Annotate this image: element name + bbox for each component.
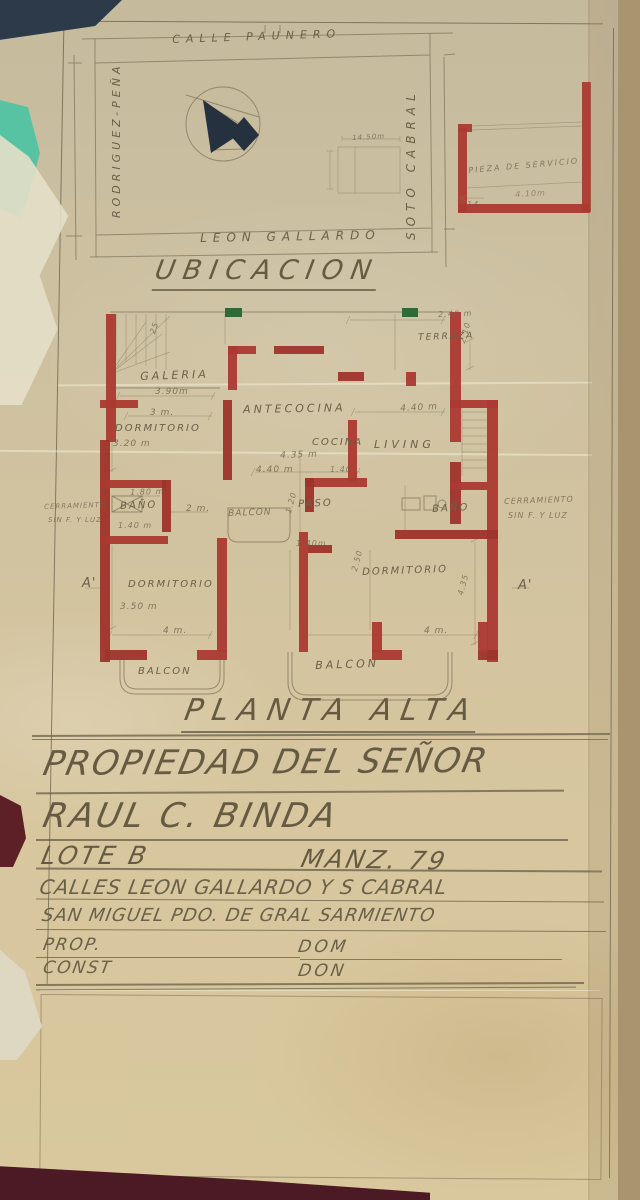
calles-label: CALLES LEON GALLARDO Y S CABRAL: [38, 875, 450, 899]
empty-panel: [39, 994, 602, 1180]
cerramiento-right-2: SIN F. Y LUZ: [508, 511, 568, 520]
localidad-label: SAN MIGUEL PDO. DE GRAL SARMIENTO: [40, 905, 437, 926]
dim-dorm1-d: 3 m.: [150, 408, 174, 418]
ubicacion-title: UBICACION: [152, 255, 382, 291]
room-living: LIVING: [374, 438, 435, 451]
photo-edge-right-fold: [590, 0, 618, 1200]
const-label: CONST: [41, 958, 114, 978]
door-marker: [225, 308, 242, 317]
dim-dorm1-w: 3.20 m: [113, 439, 151, 449]
tb-line: [300, 959, 562, 960]
cerramiento-left-2: SIN F. Y LUZ: [48, 516, 102, 524]
stairs-topleft: [110, 314, 170, 374]
dim-dorm2-b: 4 m.: [163, 626, 187, 636]
dim-cocina-d: 1.40: [330, 465, 352, 474]
room-bano-1: BAÑO: [120, 500, 157, 512]
service-room-corner-dim: 14: [467, 200, 479, 209]
dim-dorm3-l: 1.40m: [296, 539, 327, 548]
dim-cocina-w2: 4.40 m: [256, 465, 294, 475]
lot-dimension: 14.50m: [352, 132, 385, 142]
room-dormitorio-1: DORMITORIO: [115, 423, 201, 434]
dim-bano1-r: 2 m.: [186, 504, 210, 514]
owner-label: PROPIEDAD DEL SEÑOR: [40, 741, 493, 784]
room-balcon-1: BALCON: [138, 666, 192, 677]
stairs-right: [462, 408, 487, 476]
dim-cocina-w: 4.35 m: [280, 450, 318, 461]
dom-value-2: DON: [296, 961, 348, 981]
street-soto-cabral: SOTO CABRAL: [404, 88, 418, 240]
plan-title: PLANTA ALTA: [181, 693, 482, 733]
room-paso: PASO: [298, 498, 333, 510]
compass-icon: [186, 87, 260, 161]
street-rodriguez-pena: RODRIGUEZ-PEÑA: [110, 63, 123, 218]
dim-dorm3-b: 4 m.: [424, 626, 448, 636]
prop-label: PROP.: [41, 935, 103, 955]
dim-bano1-w: 1.80 m: [130, 487, 164, 497]
room-dormitorio-2: DORMITORIO: [128, 579, 214, 590]
room-balcon-2: BALCON: [315, 657, 379, 672]
owner-name: RAUL C. BINDA: [39, 796, 342, 836]
blueprint-photo: { "ubicacion": { "title": "UBICACION", "…: [0, 0, 640, 1200]
dim-terraza-w: 2.40 m: [438, 309, 472, 319]
lot-sketch: [327, 136, 400, 193]
photo-edge-right: [618, 0, 640, 1200]
section-mark-right: A': [518, 578, 532, 593]
room-cocina: COCINA: [312, 437, 363, 448]
dim-galeria: 3.90m: [155, 387, 189, 397]
lote-label: LOTE B: [39, 841, 152, 870]
dim-bano1-d: 1.40 m: [118, 521, 152, 530]
room-balcon-mid: BALCON: [228, 507, 272, 519]
dim-dorm2-w: 3.50 m: [120, 602, 158, 612]
room-galeria: GALERIA: [140, 368, 209, 383]
tb-line: [32, 739, 608, 740]
room-antecocina: ANTECOCINA: [243, 401, 346, 416]
dim-living: 4.40 m: [400, 402, 438, 414]
room-bano-2: BAÑO: [432, 502, 470, 515]
dom-value-1: DOM: [296, 937, 350, 957]
section-mark-left: A': [82, 576, 96, 591]
service-room-dim: 4.10m: [515, 188, 546, 199]
door-marker: [402, 308, 418, 317]
